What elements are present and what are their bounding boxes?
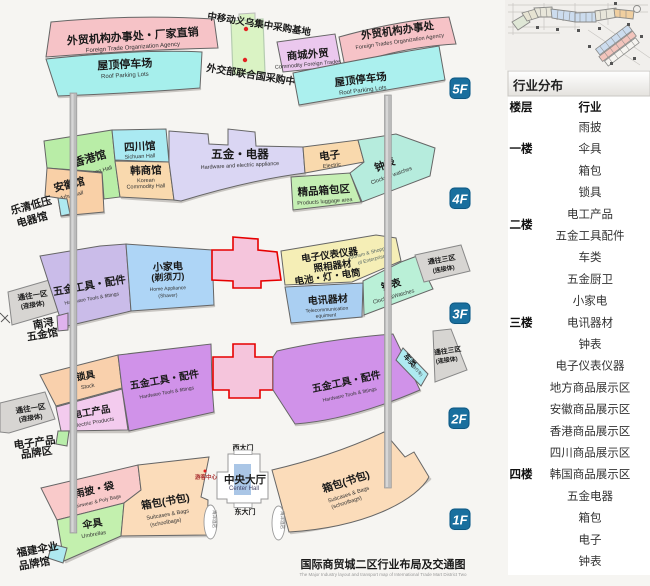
- svg-text:小家电: 小家电: [573, 294, 608, 308]
- svg-text:电工产品: 电工产品: [567, 207, 613, 221]
- svg-text:海洋酒店: 海洋酒店: [279, 511, 286, 529]
- svg-text:三楼: 三楼: [510, 315, 533, 329]
- svg-text:2F: 2F: [450, 412, 467, 427]
- svg-text:箱包: 箱包: [579, 511, 602, 525]
- svg-text:钟表: 钟表: [579, 554, 602, 568]
- svg-text:海洋酒店: 海洋酒店: [211, 510, 218, 528]
- svg-text:地方商品展示区: 地方商品展示区: [550, 380, 631, 394]
- svg-text:楼层: 楼层: [510, 100, 533, 114]
- svg-text:游客中心: 游客中心: [195, 473, 218, 481]
- svg-text:箱包: 箱包: [579, 163, 602, 177]
- svg-text:雨披: 雨披: [579, 120, 602, 134]
- svg-text:四川馆: 四川馆: [124, 139, 157, 154]
- svg-text:3F: 3F: [452, 307, 468, 322]
- svg-text:韩国商品展示区: 韩国商品展示区: [550, 467, 631, 481]
- svg-text:1F: 1F: [452, 513, 468, 528]
- svg-text:(剃须刀): (剃须刀): [151, 270, 185, 283]
- svg-text:电子: 电子: [579, 533, 602, 546]
- svg-text:一楼: 一楼: [510, 142, 533, 156]
- svg-text:锁具: 锁具: [579, 185, 602, 199]
- svg-text:四楼: 四楼: [510, 467, 533, 481]
- svg-text:钟表: 钟表: [579, 337, 602, 351]
- svg-text:五金电器: 五金电器: [567, 489, 613, 503]
- svg-text:行业分布: 行业分布: [512, 78, 564, 93]
- svg-text:中央大厅: 中央大厅: [224, 473, 266, 486]
- svg-text:二楼: 二楼: [510, 218, 533, 232]
- svg-text:4F: 4F: [451, 192, 468, 207]
- svg-text:行业: 行业: [578, 100, 602, 114]
- svg-text:电讯器材: 电讯器材: [567, 315, 613, 329]
- svg-text:Center Hall: Center Hall: [229, 486, 259, 492]
- svg-text:韩商馆: 韩商馆: [130, 163, 162, 177]
- svg-text:车类: 车类: [579, 250, 602, 264]
- svg-text:5F: 5F: [452, 82, 468, 97]
- svg-text:五金・电器: 五金・电器: [211, 147, 269, 161]
- svg-text:安徽商品展示区: 安徽商品展示区: [550, 402, 631, 416]
- svg-text:东大门: 东大门: [235, 507, 256, 516]
- svg-text:国际商贸城二区行业布局及交通图: 国际商贸城二区行业布局及交通图: [301, 557, 466, 571]
- svg-text:五金工具配件: 五金工具配件: [556, 229, 625, 243]
- svg-text:The Major Industry layout and: The Major Industry layout and transport …: [300, 572, 467, 577]
- svg-text:四川商品展示区: 四川商品展示区: [550, 446, 631, 460]
- svg-text:电子仪表仪器: 电子仪表仪器: [556, 359, 625, 373]
- svg-text:电子: 电子: [318, 148, 341, 164]
- svg-text:伞具: 伞具: [579, 142, 602, 156]
- svg-text:五金厨卫: 五金厨卫: [567, 272, 613, 286]
- svg-text:(Shaver): (Shaver): [158, 292, 178, 299]
- svg-text:香港商品展示区: 香港商品展示区: [550, 424, 631, 438]
